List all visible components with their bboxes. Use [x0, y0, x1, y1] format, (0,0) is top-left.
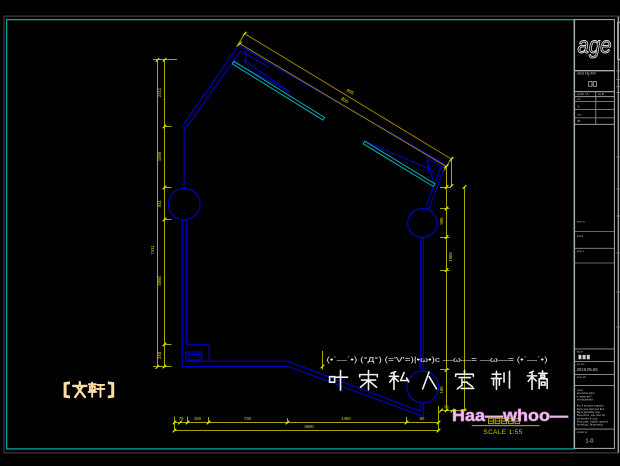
svg-text:75: 75	[179, 416, 184, 421]
svg-text:2411: 2411	[157, 87, 162, 97]
svg-text:cx B: cx B	[598, 92, 604, 96]
svg-text:xcw wk: xcw wk	[577, 375, 587, 379]
svg-text:wnnc: wnnc	[577, 234, 584, 238]
svg-text:mqv x: mqv x	[577, 249, 585, 253]
svg-text:cw wc: cw wc	[577, 362, 585, 366]
svg-text:xcwkv w: xcwkv w	[577, 430, 588, 434]
svg-text:90: 90	[420, 416, 425, 421]
svg-text:wmvkcq, 9cwmwcx: wmvkcq, 9cwmwcx	[577, 423, 604, 427]
svg-text:xvr: xvr	[577, 97, 581, 101]
svg-text:(•`—´•) (°Д°) (='V'=)|•ω•)c —ω: (•`—´•) (°Д°) (='V'=)|•ω•)c —ω—= —ω—= (•…	[327, 355, 548, 364]
svg-text:811: 811	[157, 199, 162, 206]
svg-text:1450: 1450	[341, 416, 351, 421]
svg-text:age: age	[578, 32, 612, 58]
svg-text:4B: 4B	[577, 119, 581, 123]
svg-text:160: 160	[439, 386, 444, 394]
svg-text:2019.05.06: 2019.05.06	[577, 367, 599, 372]
svg-text:7411: 7411	[150, 245, 155, 255]
svg-text:240: 240	[157, 351, 162, 359]
svg-text:905: 905	[439, 217, 444, 225]
svg-text:mvmcwkzkt: mvmcwkzkt	[577, 397, 593, 401]
svg-text:1555: 1555	[157, 151, 162, 161]
svg-text:xxm w: xxm w	[577, 220, 586, 224]
svg-text:55: 55	[445, 405, 449, 409]
svg-text:mcr: mcr	[577, 113, 582, 117]
svg-text:730: 730	[244, 416, 252, 421]
svg-text:abcd efg 400: abcd efg 400	[577, 72, 596, 76]
svg-text:SCALE 1:55: SCALE 1:55	[483, 429, 522, 436]
svg-text:3600: 3600	[304, 424, 314, 429]
svg-text:1-0: 1-0	[586, 439, 594, 445]
svg-text:Haa—whoo—: Haa—whoo—	[452, 406, 568, 425]
svg-text:xynfc / A: xynfc / A	[577, 92, 588, 96]
svg-text:1905: 1905	[448, 252, 453, 262]
svg-text:4550: 4550	[157, 276, 162, 286]
svg-text:kcj w: kcj w	[577, 349, 584, 353]
svg-text:150: 150	[194, 416, 202, 421]
